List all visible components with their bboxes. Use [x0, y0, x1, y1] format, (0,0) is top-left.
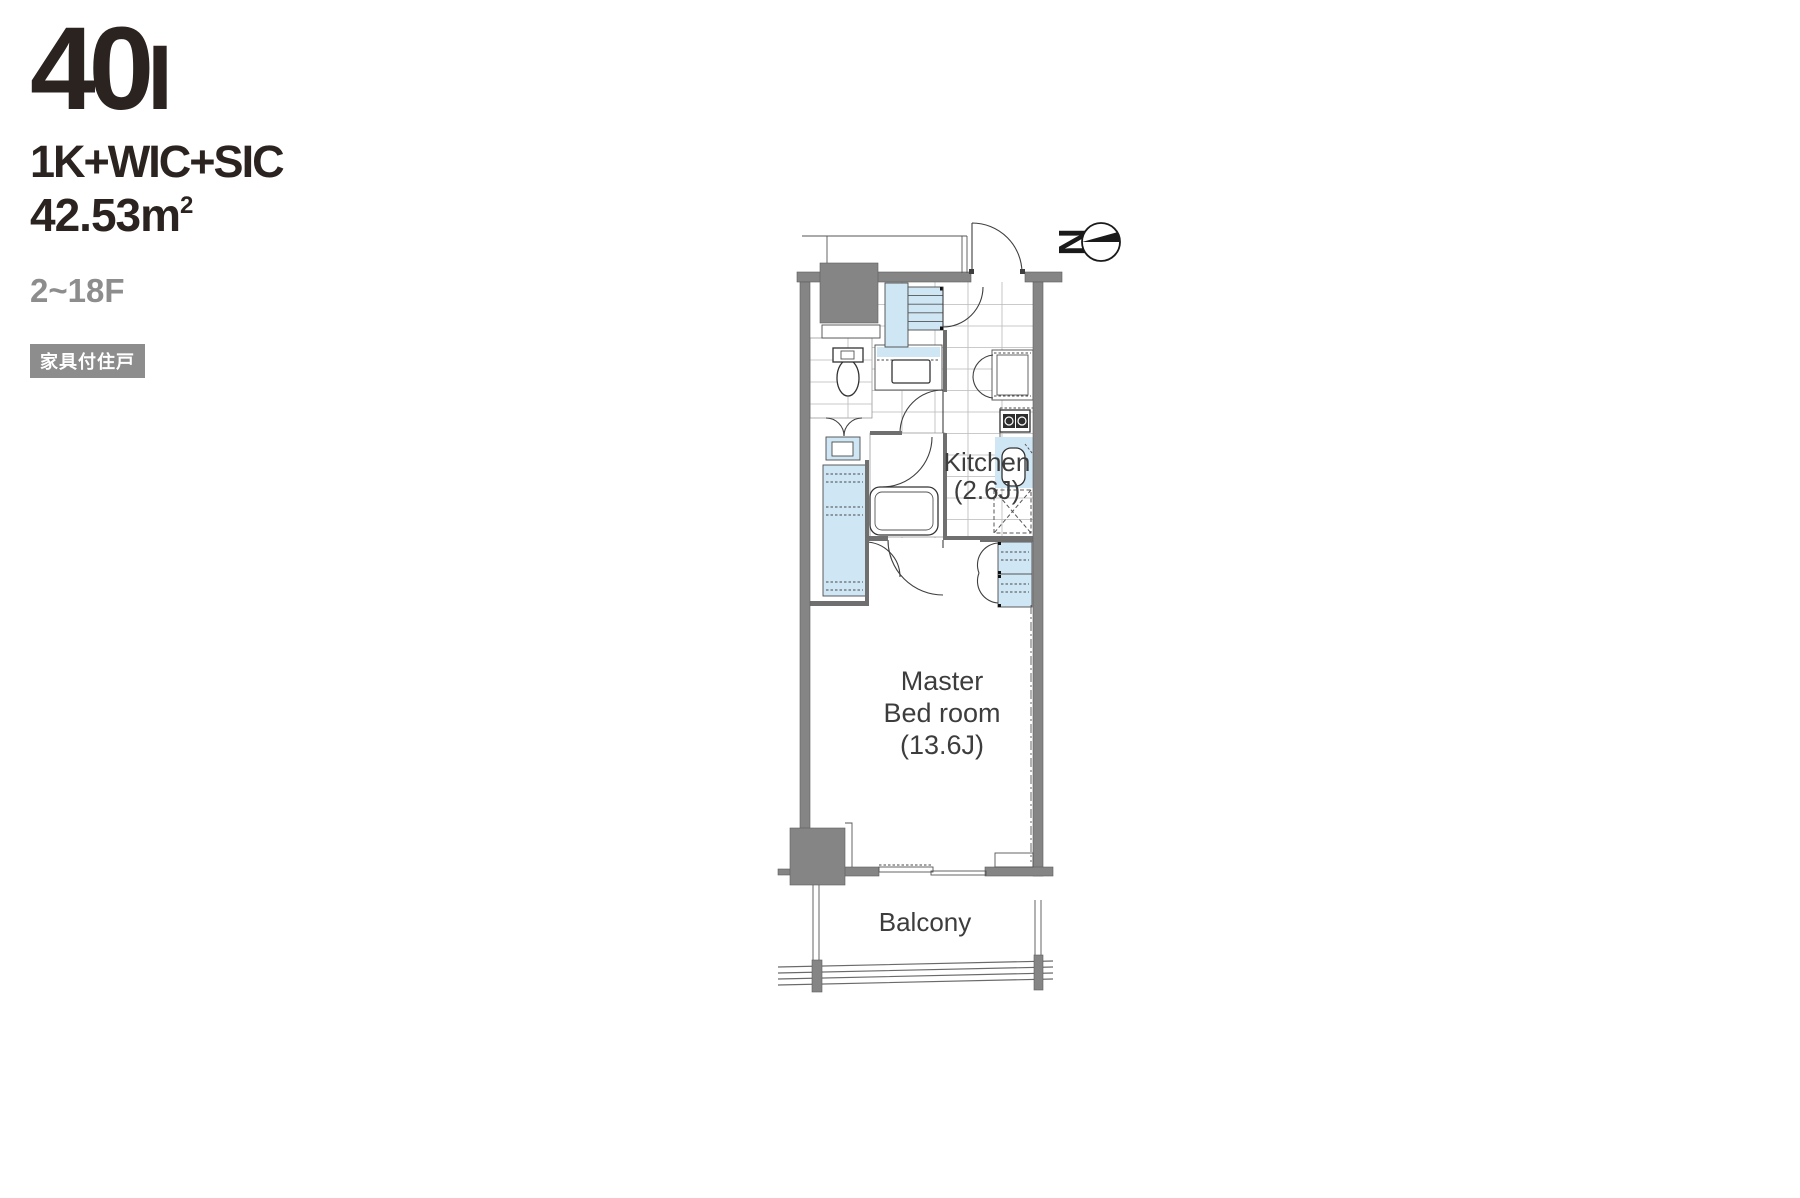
- walk-in-closet: [823, 465, 866, 596]
- bedroom-door: [888, 540, 943, 595]
- washer-space: [973, 350, 1033, 400]
- shoe-shelf: [908, 287, 943, 330]
- floor-area-sup: 2: [180, 192, 193, 219]
- pillar-top: [820, 263, 878, 323]
- toilet-folding-door: [826, 418, 862, 436]
- floor-area-value: 42.53m: [30, 189, 180, 241]
- title-block: 40I 1K+WIC+SIC 42.53m2 2~18F 家具付住戸: [30, 10, 283, 378]
- balcony-label: Balcony: [879, 907, 972, 937]
- unit-number-main: 40: [30, 3, 147, 135]
- layout-type: 1K+WIC+SIC: [30, 136, 283, 188]
- kitchen-label: Kitchen: [944, 447, 1031, 477]
- floor-area: 42.53m2: [30, 188, 283, 242]
- unit-number: 40I: [30, 10, 283, 128]
- furnished-badge: 家具付住戸: [30, 344, 145, 378]
- toilet-bowl: [837, 360, 859, 396]
- bedroom-size-label: (13.6J): [900, 730, 984, 760]
- toilet-room: [810, 338, 872, 436]
- bedroom-label-line2: Bed room: [883, 698, 1000, 728]
- washroom-door: [900, 390, 943, 433]
- bathtub: [870, 487, 938, 535]
- balcony: [778, 885, 1053, 992]
- bedroom-label-line1: Master: [901, 666, 984, 696]
- compass: N: [1050, 223, 1121, 261]
- hand-basin: [826, 437, 860, 460]
- floor-range: 2~18F: [30, 272, 283, 310]
- vanity: [875, 345, 942, 390]
- toilet-tank: [833, 348, 863, 362]
- floor-plan: N Kitchen (2.6J) Master Bed room (13.6J)…: [680, 190, 1140, 1020]
- bathroom: [870, 433, 945, 537]
- sic-folding-doors: [977, 543, 998, 603]
- hall-door: [943, 287, 983, 327]
- unit-number-suffix: I: [147, 27, 171, 129]
- wic-door: [865, 542, 900, 577]
- shoes-in-closet: [977, 542, 1032, 607]
- pillar-bottom: [790, 828, 845, 885]
- kitchen-size-label: (2.6J): [954, 475, 1020, 505]
- washer-doors: [973, 355, 993, 398]
- entry-door: [972, 223, 1022, 273]
